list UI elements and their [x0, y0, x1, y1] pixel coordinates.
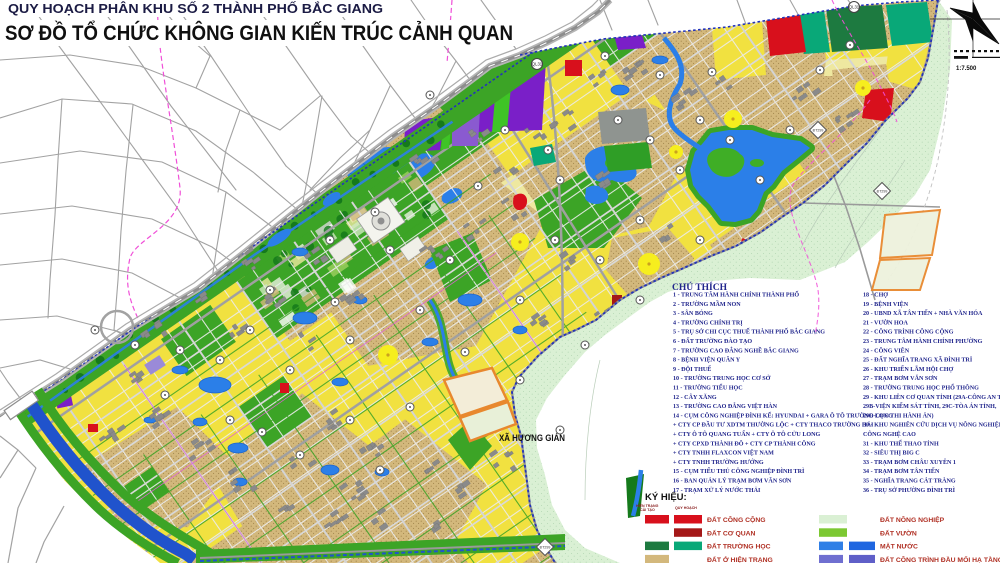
svg-text:CHÚ THÍCH: CHÚ THÍCH [672, 281, 728, 293]
svg-text:KÝ HIỆU:: KÝ HIỆU: [645, 491, 687, 503]
svg-text:21 - VƯỜN HOA: 21 - VƯỜN HOA [863, 318, 908, 326]
svg-text:ĐT299: ĐT299 [813, 129, 824, 133]
svg-text:ĐT299: ĐT299 [540, 546, 551, 550]
svg-text:25 - ĐẤT NGHĨA TRANG XÃ ĐÌNH T: 25 - ĐẤT NGHĨA TRANG XÃ ĐÌNH TRÌ [863, 356, 973, 364]
svg-text:9 - ĐỘI THUẾ: 9 - ĐỘI THUẾ [673, 365, 711, 373]
svg-text:+ CTY TNHH FLAXCON VIỆT NAM: + CTY TNHH FLAXCON VIỆT NAM [673, 449, 774, 457]
svg-text:31 - KHU THỂ THAO TỈNH: 31 - KHU THỂ THAO TỈNH [863, 439, 939, 447]
svg-text:29D-CỤC THI HÀNH ÁN): 29D-CỤC THI HÀNH ÁN) [863, 411, 933, 419]
svg-text:MẶT NƯỚC: MẶT NƯỚC [880, 542, 918, 551]
svg-text:CÔNG NGHỆ CAO: CÔNG NGHỆ CAO [863, 430, 916, 438]
svg-text:16 - BAN QUẢN LÝ TRẠM BƠM VĂN: 16 - BAN QUẢN LÝ TRẠM BƠM VĂN SƠN [673, 477, 792, 485]
svg-text:14 - CỤM CÔNG NGHIỆP ĐÌNH KẾ:: 14 - CỤM CÔNG NGHIỆP ĐÌNH KẾ: HYUNDAI + … [673, 411, 893, 419]
svg-text:26 - KHU TRIỂN LÃM HỘI CHỢ: 26 - KHU TRIỂN LÃM HỘI CHỢ [863, 365, 954, 373]
svg-text:10 - TRƯỜNG TRUNG HỌC CƠ SỞ: 10 - TRƯỜNG TRUNG HỌC CƠ SỞ [673, 374, 771, 382]
svg-text:27 - TRẠM BƠM VĂN SƠN: 27 - TRẠM BƠM VĂN SƠN [863, 374, 938, 382]
svg-text:36 - TRỤ SỞ PHƯỜNG ĐÌNH TRÌ: 36 - TRỤ SỞ PHƯỜNG ĐÌNH TRÌ [863, 486, 956, 494]
svg-text:23 - TRUNG TÂM HÀNH CHÍNH PHƯỜ: 23 - TRUNG TÂM HÀNH CHÍNH PHƯỜNG [863, 337, 983, 345]
svg-text:13 - TRƯỜNG CAO ĐẲNG VIỆT HÀN: 13 - TRƯỜNG CAO ĐẲNG VIỆT HÀN [673, 402, 778, 410]
svg-text:33 - TRẠM BƠM CHÂU XUYÊN 1: 33 - TRẠM BƠM CHÂU XUYÊN 1 [863, 458, 956, 466]
svg-text:+ CTY CP ĐẦU TƯ XDTM THƯỜNG LỘ: + CTY CP ĐẦU TƯ XDTM THƯỜNG LỘC + CTY TH… [673, 421, 874, 429]
svg-text:2 - TRƯỜNG MẦM NON: 2 - TRƯỜNG MẦM NON [673, 300, 741, 308]
svg-text:5 - TRỤ SỞ CHI CỤC THUẾ THÀNH: 5 - TRỤ SỞ CHI CỤC THUẾ THÀNH PHỐ BẮC GI… [673, 328, 825, 336]
svg-text:4 - TRƯỜNG CHÍNH TRỊ: 4 - TRƯỜNG CHÍNH TRỊ [673, 318, 743, 326]
svg-text:1:7.500: 1:7.500 [956, 66, 977, 72]
svg-text:18 - CHỢ: 18 - CHỢ [863, 292, 888, 299]
svg-text:QUY HOẠCH PHÂN KHU SỐ 2 THÀNH: QUY HOẠCH PHÂN KHU SỐ 2 THÀNH PHỐ BẮC GI… [8, 1, 383, 16]
svg-text:1 - TRUNG TÂM HÀNH CHÍNH THÀNH: 1 - TRUNG TÂM HÀNH CHÍNH THÀNH PHỐ [673, 291, 799, 299]
svg-text:SƠ ĐỒ TỔ CHỨC KHÔNG GIAN KIẾN: SƠ ĐỒ TỔ CHỨC KHÔNG GIAN KIẾN TRÚC CẢNH … [5, 20, 513, 45]
svg-text:7 - TRƯỜNG CAO ĐẲNG NGHỀ BẮC G: 7 - TRƯỜNG CAO ĐẲNG NGHỀ BẮC GIANG [673, 346, 799, 354]
svg-text:24 - CÔNG VIÊN: 24 - CÔNG VIÊN [863, 346, 910, 354]
svg-text:32 - SIÊU THỊ BIG C: 32 - SIÊU THỊ BIG C [863, 449, 920, 457]
svg-text:20 - UBND XÃ TÂN TIẾN + NHÀ VĂ: 20 - UBND XÃ TÂN TIẾN + NHÀ VĂN HÓA [863, 309, 983, 317]
svg-text:35 - NGHĨA TRANG CÁT TRÀNG: 35 - NGHĨA TRANG CÁT TRÀNG [863, 477, 956, 485]
svg-text:15 - CỤM TIỂU THỦ CÔNG NGHIỆP: 15 - CỤM TIỂU THỦ CÔNG NGHIỆP ĐÌNH TRÌ [673, 467, 805, 475]
svg-text:QL31: QL31 [532, 62, 543, 67]
svg-text:30 - KHU NGHIÊN CỨU DỊCH VỤ NÔ: 30 - KHU NGHIÊN CỨU DỊCH VỤ NÔNG NGHIỆP [863, 421, 1000, 429]
svg-text:+ CTY CPXD THÀNH ĐÔ + CTY CP T: + CTY CPXD THÀNH ĐÔ + CTY CP THÀNH CÔNG [673, 439, 816, 447]
svg-text:28 - TRƯỜNG TRUNG HỌC PHỔ THÔN: 28 - TRƯỜNG TRUNG HỌC PHỔ THÔNG [863, 384, 979, 392]
svg-text:8 - BỆNH VIỆN QUÂN Y: 8 - BỆNH VIỆN QUÂN Y [673, 356, 741, 364]
svg-text:29B-VIỆN KIỂM SÁT TỈNH, 29C-TÒ: 29B-VIỆN KIỂM SÁT TỈNH, 29C-TÒA ÁN TỈNH, [863, 402, 997, 410]
svg-text:ĐT299: ĐT299 [877, 190, 888, 194]
svg-text:22 - CÔNG TRÌNH CÔNG CỘNG: 22 - CÔNG TRÌNH CÔNG CỘNG [863, 328, 954, 336]
svg-text:XÃ HƯƠNG GIÁN: XÃ HƯƠNG GIÁN [499, 433, 565, 444]
svg-text:6 - ĐẤT TRƯỜNG ĐÀO TẠO: 6 - ĐẤT TRƯỜNG ĐÀO TẠO [673, 337, 752, 345]
svg-text:34 - TRẠM BƠM TÂN TIẾN: 34 - TRẠM BƠM TÂN TIẾN [863, 467, 940, 475]
svg-text:+ CTY Ô TÔ QUANG TUẤN + CTY Ô: + CTY Ô TÔ QUANG TUẤN + CTY Ô TÔ CỬU LON… [673, 430, 821, 438]
svg-text:3 - SÂN BÓNG: 3 - SÂN BÓNG [673, 309, 713, 317]
svg-text:29 - KHU LIÊN CƠ QUAN TỈNH (29: 29 - KHU LIÊN CƠ QUAN TỈNH (29A-CÔNG AN … [863, 393, 1000, 401]
svg-text:QL31: QL31 [849, 5, 860, 10]
svg-text:QUY HOẠCH: QUY HOẠCH [675, 506, 697, 510]
svg-text:12 - CÂY XĂNG: 12 - CÂY XĂNG [673, 393, 717, 401]
svg-text:19 - BỆNH VIỆN: 19 - BỆNH VIỆN [863, 300, 909, 308]
svg-text:11 - TRƯỜNG TIỂU HỌC: 11 - TRƯỜNG TIỂU HỌC [673, 384, 743, 392]
svg-text:+ CTY TNHH TRƯỜNG HƯỚNG: + CTY TNHH TRƯỜNG HƯỚNG [673, 458, 764, 466]
svg-text:CẢI TẠO: CẢI TẠO [640, 507, 655, 512]
